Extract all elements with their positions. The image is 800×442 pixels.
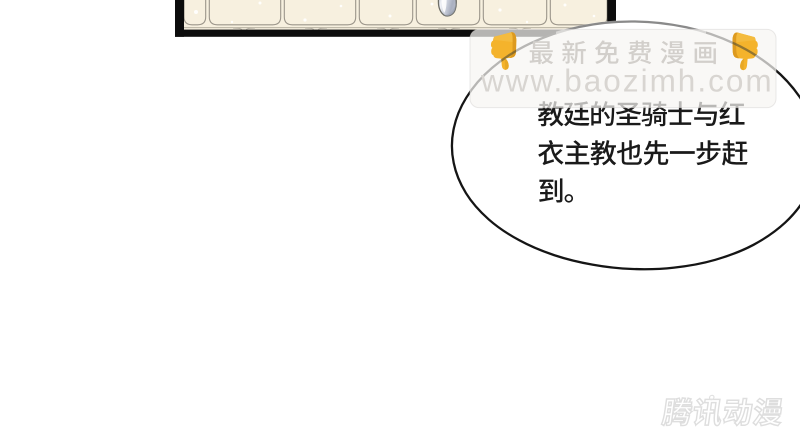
svg-text:www.baozimh.com: www.baozimh.com (480, 63, 774, 99)
